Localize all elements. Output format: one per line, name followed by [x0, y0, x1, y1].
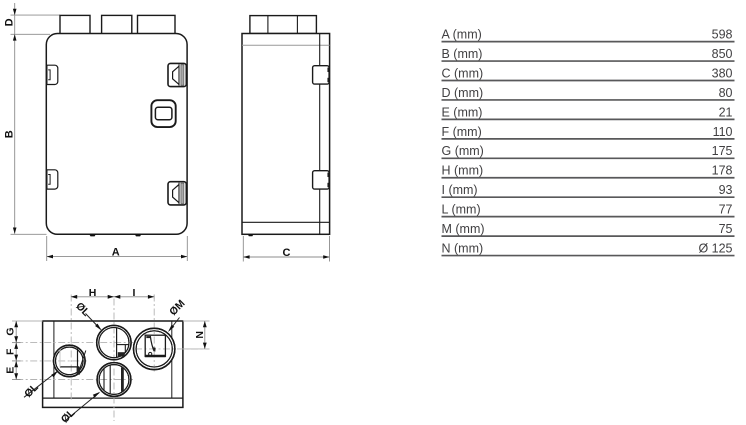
svg-text:75: 75 [719, 222, 733, 236]
svg-text:F: F [5, 348, 17, 355]
svg-text:B: B [4, 130, 16, 138]
svg-text:I (mm): I (mm) [442, 183, 478, 197]
svg-text:C (mm): C (mm) [442, 66, 484, 80]
svg-text:G: G [5, 327, 17, 335]
svg-text:B (mm): B (mm) [442, 47, 483, 61]
svg-text:E: E [5, 367, 17, 374]
svg-text:E (mm): E (mm) [442, 105, 483, 119]
svg-text:F (mm): F (mm) [442, 125, 482, 139]
svg-text:A (mm): A (mm) [442, 28, 482, 42]
svg-text:77: 77 [719, 203, 733, 217]
svg-text:380: 380 [712, 66, 733, 80]
svg-text:H: H [89, 287, 97, 299]
svg-text:L (mm): L (mm) [442, 203, 481, 217]
svg-text:21: 21 [719, 105, 733, 119]
svg-text:80: 80 [719, 86, 733, 100]
svg-text:D (mm): D (mm) [442, 86, 484, 100]
svg-text:M (mm): M (mm) [442, 222, 485, 236]
svg-text:850: 850 [712, 47, 733, 61]
svg-text:A: A [112, 247, 120, 259]
svg-text:175: 175 [712, 144, 733, 158]
svg-text:N: N [194, 331, 206, 339]
svg-text:I: I [133, 287, 136, 299]
svg-text:G (mm): G (mm) [442, 144, 484, 158]
svg-text:H (mm): H (mm) [442, 164, 484, 178]
svg-text:93: 93 [719, 183, 733, 197]
svg-text:598: 598 [712, 28, 733, 42]
svg-text:D: D [4, 18, 16, 26]
svg-text:178: 178 [712, 164, 733, 178]
svg-text:C: C [283, 247, 291, 259]
svg-text:Ø 125: Ø 125 [698, 241, 732, 255]
svg-text:110: 110 [713, 125, 733, 139]
svg-text:N (mm): N (mm) [442, 241, 484, 255]
